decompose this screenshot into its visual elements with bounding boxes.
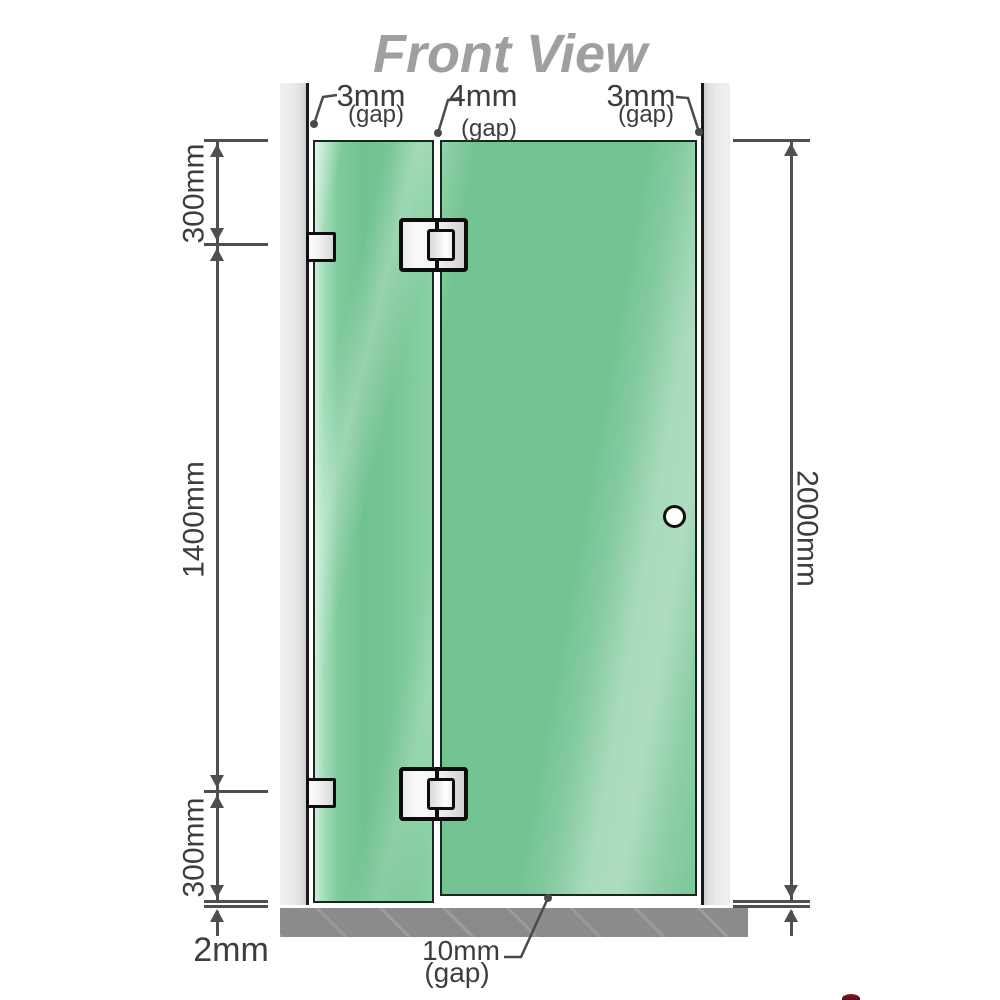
cutoff-logo-sliver xyxy=(842,994,860,1000)
arrow-down-icon xyxy=(784,885,798,898)
gap-label-10mm-suffix: (gap) xyxy=(387,958,527,987)
tick-glass-top xyxy=(204,139,268,142)
tick-hinge-top xyxy=(204,243,268,246)
dim-label-300mm-top: 300mm xyxy=(178,139,211,249)
hinge-top xyxy=(399,218,468,272)
gap-label-middle: 4mm xyxy=(433,80,533,113)
tick-hinge-bottom xyxy=(204,790,268,793)
arrow-up-icon xyxy=(784,909,798,922)
shower-screen-front-view-diagram: Front View 300mm 1400mm 300mm 2000mm 2mm xyxy=(0,0,1000,1000)
dim-label-2mm: 2mm xyxy=(171,933,291,969)
arrow-down-icon xyxy=(210,228,224,241)
arrow-up-icon xyxy=(210,248,224,261)
wall-channel-left xyxy=(280,83,309,905)
dim-label-300mm-bottom: 300mm xyxy=(178,793,211,903)
tick-glass-bottom-right xyxy=(733,900,810,903)
door-handle-knob-icon xyxy=(663,505,686,528)
arrow-up-icon xyxy=(210,795,224,808)
gap-label-right-suffix: (gap) xyxy=(596,102,696,127)
dim-label-1400mm: 1400mm xyxy=(178,455,211,585)
dim-label-2000mm: 2000mm xyxy=(791,459,824,599)
hinge-clamp-plate xyxy=(427,229,455,261)
tick-base-top-right xyxy=(733,905,810,908)
hinge-bottom xyxy=(399,767,468,821)
diagram-title: Front View xyxy=(310,27,710,81)
arrow-down-icon xyxy=(210,775,224,788)
hinge-clamp-plate xyxy=(427,778,455,810)
wall-channel-right xyxy=(701,83,730,905)
gap-label-left-suffix: (gap) xyxy=(326,102,426,127)
wall-bracket-bottom xyxy=(306,778,336,808)
arrow-down-icon xyxy=(210,885,224,898)
gap-label-middle-suffix: (gap) xyxy=(439,116,539,141)
arrow-up-icon xyxy=(784,143,798,156)
glass-panel-door xyxy=(440,140,697,896)
wall-bracket-top xyxy=(306,232,336,262)
floor-base xyxy=(280,908,748,937)
leader-dot-icon xyxy=(310,120,318,128)
tick-glass-top-right xyxy=(733,139,810,142)
tick-glass-bottom xyxy=(204,900,268,903)
arrow-up-icon xyxy=(210,144,224,157)
tick-base-top xyxy=(204,905,268,908)
arrow-up-icon xyxy=(210,909,224,922)
